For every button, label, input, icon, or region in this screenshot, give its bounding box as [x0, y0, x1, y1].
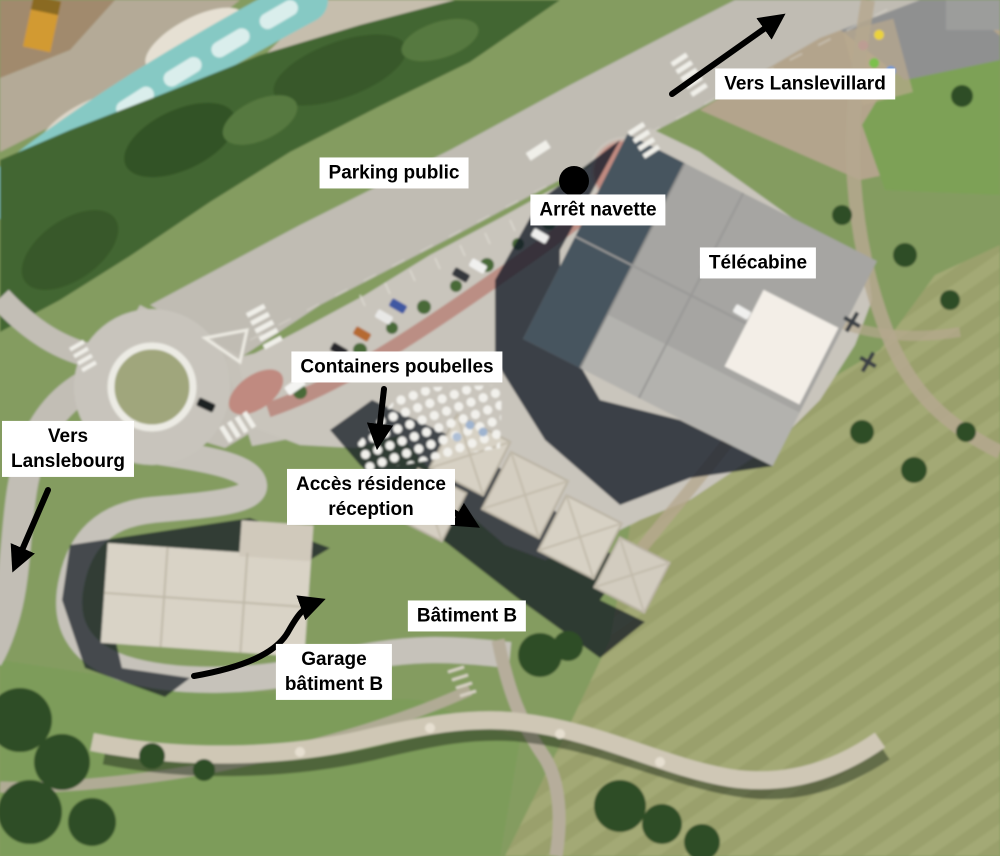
label-lanslebourg-line2: Lanslebourg: [11, 449, 125, 474]
label-vers-lanslebourg: Vers Lanslebourg: [2, 421, 134, 477]
label-containers-poubelles: Containers poubelles: [291, 351, 502, 382]
label-vers-lanslevillard: Vers Lanslevillard: [715, 68, 895, 99]
label-parking-public: Parking public: [320, 157, 469, 188]
shuttle-stop-dot: [559, 166, 589, 196]
annotation-arrows-layer: [0, 0, 1000, 856]
label-telecabine: Télécabine: [700, 247, 816, 278]
label-acces-line1: Accès résidence: [296, 472, 446, 497]
annotated-aerial-map: Vers Lanslevillard Parking public Arrêt …: [0, 0, 1000, 856]
label-garage-batiment-b: Garage bâtiment B: [276, 644, 392, 700]
label-garage-line2: bâtiment B: [285, 672, 383, 697]
arrow-vers-lanslebourg: [16, 490, 48, 564]
label-batiment-b: Bâtiment B: [408, 600, 526, 631]
label-garage-line1: Garage: [285, 647, 383, 672]
label-acces-line2: réception: [296, 497, 446, 522]
label-lanslebourg-line1: Vers: [11, 424, 125, 449]
arrow-containers-poubelles: [378, 389, 384, 441]
label-acces-residence-reception: Accès résidence réception: [287, 469, 455, 525]
label-arret-navette: Arrêt navette: [530, 194, 665, 225]
